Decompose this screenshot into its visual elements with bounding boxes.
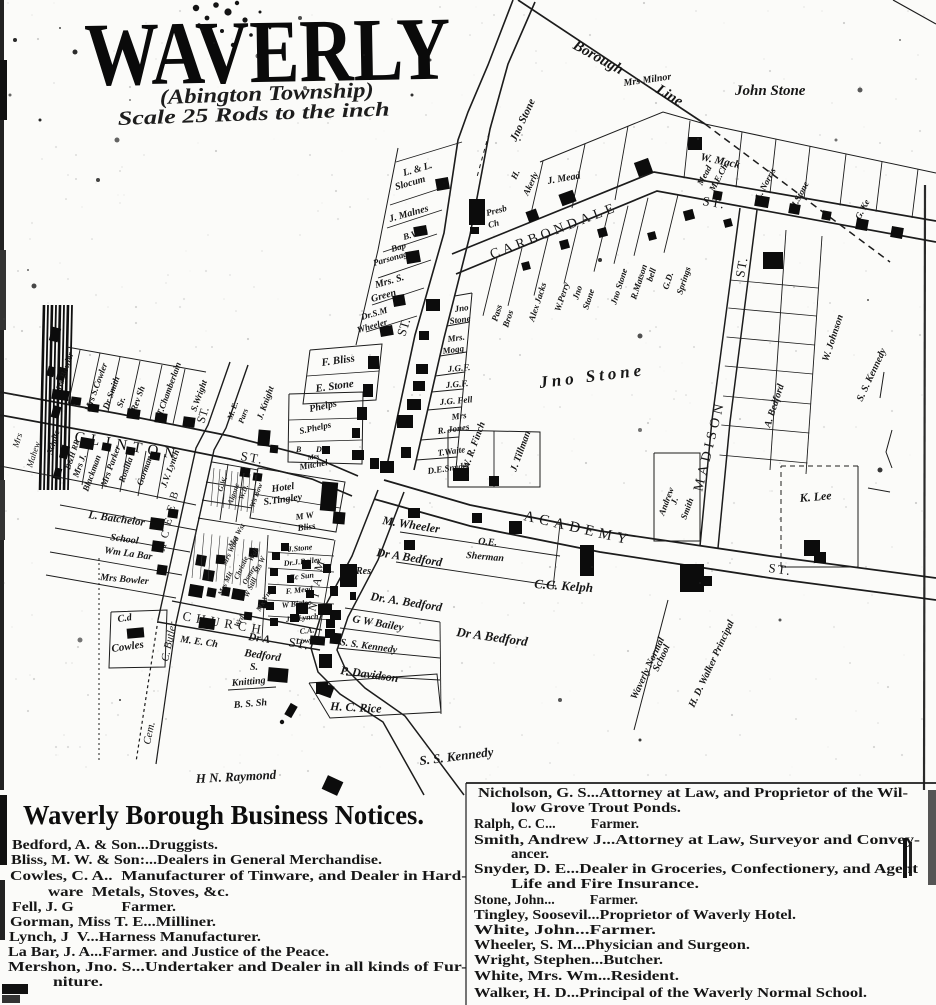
svg-text:B: B bbox=[295, 445, 302, 454]
svg-text:White, Mrs. Wm...Resident.: White, Mrs. Wm...Resident. bbox=[474, 968, 679, 983]
svg-text:White, John...Farmer.: White, John...Farmer. bbox=[474, 922, 656, 937]
svg-text:Walker, H. D...Principal of th: Walker, H. D...Principal of the Waverly … bbox=[474, 985, 867, 1000]
svg-text:Wheeler, S. M...Physician and: Wheeler, S. M...Physician and Surgeon. bbox=[474, 937, 750, 952]
svg-text:John Stone: John Stone bbox=[734, 83, 806, 99]
svg-text:Bliss, M. W. & Son:...Dealers: Bliss, M. W. & Son:...Dealers in General… bbox=[11, 852, 382, 867]
svg-text:low Grove Trout Ponds.: low Grove Trout Ponds. bbox=[511, 800, 681, 815]
svg-text:J.G.F.: J.G.F. bbox=[446, 362, 470, 374]
svg-text:Stone, John... Farmer: Stone, John... Farmer. bbox=[474, 892, 638, 907]
svg-text:Wright, Stephen...Butcher.: Wright, Stephen...Butcher. bbox=[474, 952, 663, 967]
svg-text:ancer.: ancer. bbox=[511, 846, 549, 861]
svg-text:Life and Fire Insurance.: Life and Fire Insurance. bbox=[511, 876, 699, 891]
svg-text:Nicholson, G. S...Attorney at: Nicholson, G. S...Attorney at Law, and P… bbox=[478, 785, 908, 800]
svg-text:J.G.F.: J.G.F. bbox=[444, 378, 468, 390]
svg-text:Ralph, C. C... Farmer: Ralph, C. C... Farmer. bbox=[474, 816, 639, 831]
svg-text:Res: Res bbox=[355, 566, 371, 577]
svg-text:Mershon, Jno. S...Undertaker a: Mershon, Jno. S...Undertaker and Dealer … bbox=[8, 959, 467, 974]
svg-text:O.E.: O.E. bbox=[478, 536, 498, 549]
svg-text:Bedford, A. & Son...Druggists.: Bedford, A. & Son...Druggists. bbox=[12, 837, 218, 852]
svg-text:ware Metals, Stoves, &c.: ware Metals, Stoves, &c. bbox=[48, 884, 229, 899]
svg-text:H. C. Rice: H. C. Rice bbox=[329, 699, 383, 716]
svg-text:C.d: C.d bbox=[117, 612, 134, 625]
svg-text:Waverly Borough Business Notic: Waverly Borough Business Notices. bbox=[23, 800, 424, 830]
svg-text:Lynch, J V...Harness Manufact: Lynch, J V...Harness Manufacturer. bbox=[9, 929, 261, 944]
svg-text:Jno: Jno bbox=[453, 302, 470, 314]
svg-text:La Bar, J. A...Farmer. and Jus: La Bar, J. A...Farmer. and Justice of th… bbox=[8, 944, 329, 959]
svg-text:Snyder, D. E...Dealer in Groce: Snyder, D. E...Dealer in Groceries, Conf… bbox=[474, 861, 918, 876]
svg-text:Fell, J. G Farmer.: Fell, J. G Farmer. bbox=[12, 899, 176, 914]
svg-text:Smith, Andrew J...Attorney at: Smith, Andrew J...Attorney at Law, Surve… bbox=[474, 832, 921, 847]
svg-text:S.: S. bbox=[250, 662, 258, 673]
svg-text:K. Lee: K. Lee bbox=[798, 488, 833, 505]
svg-text:niture.: niture. bbox=[53, 974, 103, 989]
svg-text:Tingley, Soosevil...Proprietor: Tingley, Soosevil...Proprietor of Waverl… bbox=[474, 907, 796, 922]
svg-text:Cowles, C. A.. Manufacturer o: Cowles, C. A.. Manufacturer of Tinware, … bbox=[10, 868, 467, 883]
svg-text:Gorman, Miss T. E...Milliner.: Gorman, Miss T. E...Milliner. bbox=[10, 914, 216, 929]
